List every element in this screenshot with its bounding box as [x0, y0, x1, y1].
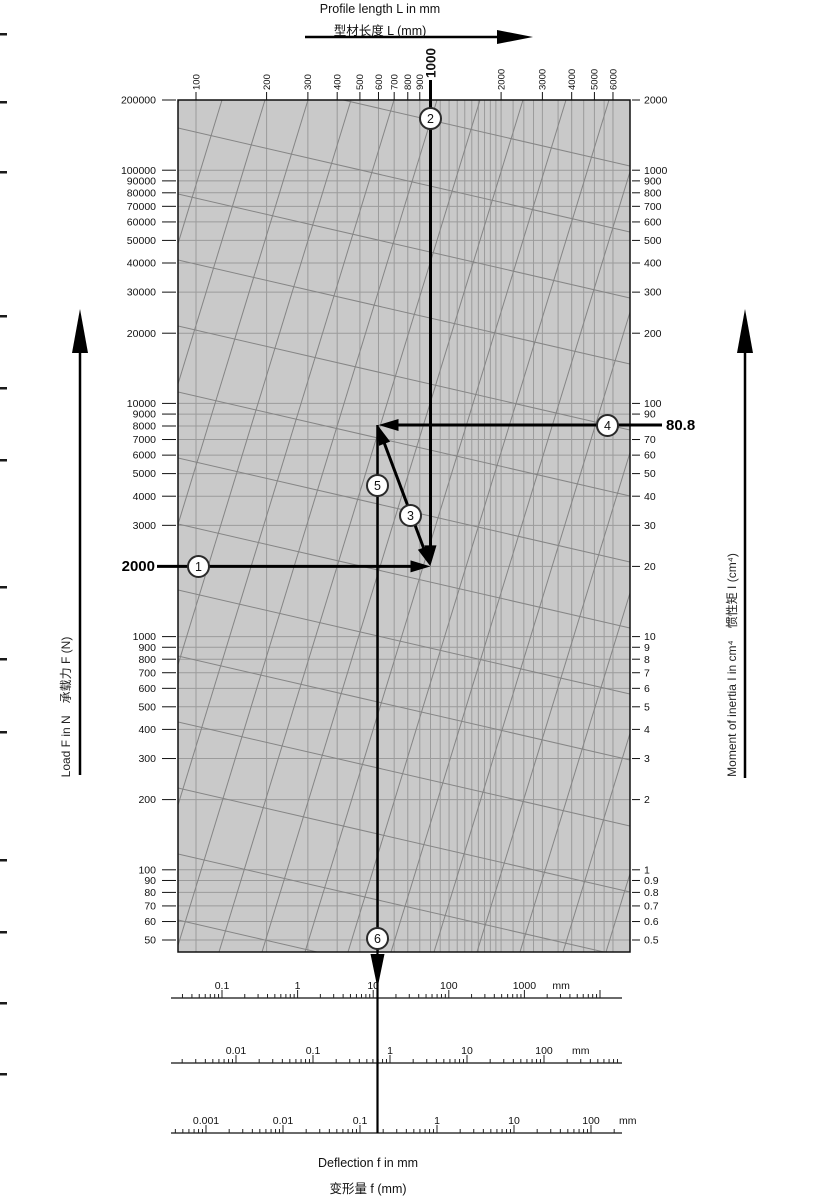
svg-text:60: 60 [644, 450, 656, 462]
svg-text:0.1: 0.1 [306, 1045, 321, 1057]
svg-text:mm: mm [552, 980, 570, 992]
deflection-scale-3: 0.0010.010.1110100mm [171, 1115, 637, 1133]
svg-text:7000: 7000 [133, 434, 157, 446]
svg-text:100: 100 [535, 1045, 553, 1057]
svg-text:1000: 1000 [423, 48, 438, 78]
svg-text:800: 800 [403, 74, 414, 90]
top-axis-ticks: 1002003004005006007008009002000300040005… [191, 48, 619, 100]
svg-text:50: 50 [644, 468, 656, 480]
svg-text:200: 200 [262, 74, 273, 90]
svg-text:0.001: 0.001 [193, 1115, 219, 1127]
right-axis-ticks: 2000100090080070060050040030020010090706… [632, 95, 668, 947]
svg-text:200: 200 [138, 794, 156, 806]
deflection-scale-2: 0.010.1110100mm [171, 1045, 622, 1063]
svg-text:500: 500 [355, 74, 366, 90]
svg-text:40000: 40000 [127, 258, 156, 270]
top-axis-title-zh: 型材长度 L (mm) [280, 20, 480, 39]
svg-text:300: 300 [644, 287, 662, 299]
svg-text:1000: 1000 [513, 980, 537, 992]
svg-text:3000: 3000 [133, 520, 157, 532]
svg-text:200: 200 [644, 328, 662, 340]
svg-text:0.01: 0.01 [273, 1115, 294, 1127]
svg-text:60000: 60000 [127, 217, 156, 229]
step-marker-6: 6 [366, 927, 389, 950]
svg-text:500: 500 [138, 701, 156, 713]
svg-text:0.6: 0.6 [644, 916, 659, 928]
svg-text:5: 5 [644, 701, 650, 713]
svg-text:800: 800 [138, 654, 156, 666]
svg-text:80: 80 [144, 887, 156, 899]
svg-text:300: 300 [138, 753, 156, 765]
svg-text:0.9: 0.9 [644, 875, 659, 887]
svg-text:70: 70 [144, 901, 156, 913]
svg-text:900: 900 [644, 175, 662, 187]
svg-text:90: 90 [644, 409, 656, 421]
edge-artifacts [0, 33, 7, 1076]
svg-text:400: 400 [138, 724, 156, 736]
svg-text:0.8: 0.8 [644, 887, 659, 899]
svg-text:60: 60 [144, 916, 156, 928]
svg-text:2: 2 [644, 794, 650, 806]
svg-text:400: 400 [332, 74, 343, 90]
example-inertia-label: 80.8 [666, 417, 736, 434]
svg-text:10: 10 [461, 1045, 473, 1057]
svg-text:70000: 70000 [127, 201, 156, 213]
svg-text:70: 70 [644, 434, 656, 446]
svg-text:700: 700 [138, 667, 156, 679]
svg-text:7: 7 [644, 667, 650, 679]
svg-text:8000: 8000 [133, 421, 157, 433]
svg-text:600: 600 [138, 683, 156, 695]
svg-text:mm: mm [619, 1115, 637, 1127]
svg-text:2000: 2000 [496, 69, 507, 90]
bottom-axis-title-zh: 变形量 f (mm) [268, 1178, 468, 1197]
svg-text:1: 1 [295, 980, 301, 992]
right-axis-title: Moment of inertia I in cm⁴ 惯性矩 I (cm⁴) [723, 485, 743, 845]
svg-text:0.1: 0.1 [353, 1115, 368, 1127]
svg-text:4000: 4000 [567, 69, 578, 90]
svg-text:600: 600 [374, 74, 385, 90]
svg-text:6: 6 [644, 683, 650, 695]
top-axis-title-en: Profile length L in mm [280, 2, 480, 16]
svg-text:100: 100 [582, 1115, 600, 1127]
svg-text:40: 40 [644, 491, 656, 503]
svg-text:90000: 90000 [127, 175, 156, 187]
svg-text:1: 1 [387, 1045, 393, 1057]
svg-text:0.01: 0.01 [226, 1045, 247, 1057]
svg-text:700: 700 [644, 201, 662, 213]
svg-text:800: 800 [644, 187, 662, 199]
svg-text:1: 1 [434, 1115, 440, 1127]
svg-text:700: 700 [389, 74, 400, 90]
left-axis-ticks: 2000001000009000080000700006000050000400… [121, 95, 176, 947]
example-load-label: 2000 [95, 558, 155, 575]
deflection-nomogram-page: 1002003004005006007008009002000300040005… [0, 0, 824, 1200]
svg-text:80000: 80000 [127, 187, 156, 199]
svg-text:9000: 9000 [133, 409, 157, 421]
step-marker-5: 5 [366, 474, 389, 497]
svg-text:2000: 2000 [644, 95, 668, 107]
svg-text:30: 30 [644, 520, 656, 532]
svg-text:100: 100 [440, 980, 458, 992]
svg-text:6000: 6000 [133, 450, 157, 462]
svg-text:600: 600 [644, 217, 662, 229]
svg-text:20: 20 [644, 561, 656, 573]
svg-text:900: 900 [138, 642, 156, 654]
svg-text:0.7: 0.7 [644, 901, 659, 913]
svg-text:5000: 5000 [590, 69, 601, 90]
svg-text:4: 4 [644, 724, 650, 736]
svg-text:20000: 20000 [127, 328, 156, 340]
svg-text:50000: 50000 [127, 235, 156, 247]
svg-text:400: 400 [644, 258, 662, 270]
svg-text:mm: mm [572, 1045, 590, 1057]
svg-text:0.5: 0.5 [644, 935, 659, 947]
svg-text:3: 3 [644, 753, 650, 765]
step-marker-4: 4 [596, 414, 619, 437]
svg-text:0.1: 0.1 [215, 980, 230, 992]
svg-text:8: 8 [644, 654, 650, 666]
svg-text:200000: 200000 [121, 95, 156, 107]
svg-text:9: 9 [644, 642, 650, 654]
bottom-axis-title-en: Deflection f in mm [268, 1156, 468, 1170]
svg-text:4000: 4000 [133, 491, 157, 503]
svg-text:10: 10 [508, 1115, 520, 1127]
svg-text:30000: 30000 [127, 287, 156, 299]
svg-text:5000: 5000 [133, 468, 157, 480]
step-marker-2: 2 [419, 107, 442, 130]
svg-text:3000: 3000 [538, 69, 549, 90]
plot-area [178, 100, 630, 952]
svg-text:6000: 6000 [608, 69, 619, 90]
svg-text:300: 300 [303, 74, 314, 90]
deflection-scale-1: 0.11101001000mm [171, 980, 622, 998]
svg-text:90: 90 [144, 875, 156, 887]
step-marker-3: 3 [399, 504, 422, 527]
svg-text:50: 50 [144, 935, 156, 947]
svg-text:100: 100 [191, 74, 202, 90]
left-axis-title: Load F in N 承载力 F (N) [57, 527, 77, 887]
svg-text:500: 500 [644, 235, 662, 247]
step-marker-1: 1 [187, 555, 210, 578]
